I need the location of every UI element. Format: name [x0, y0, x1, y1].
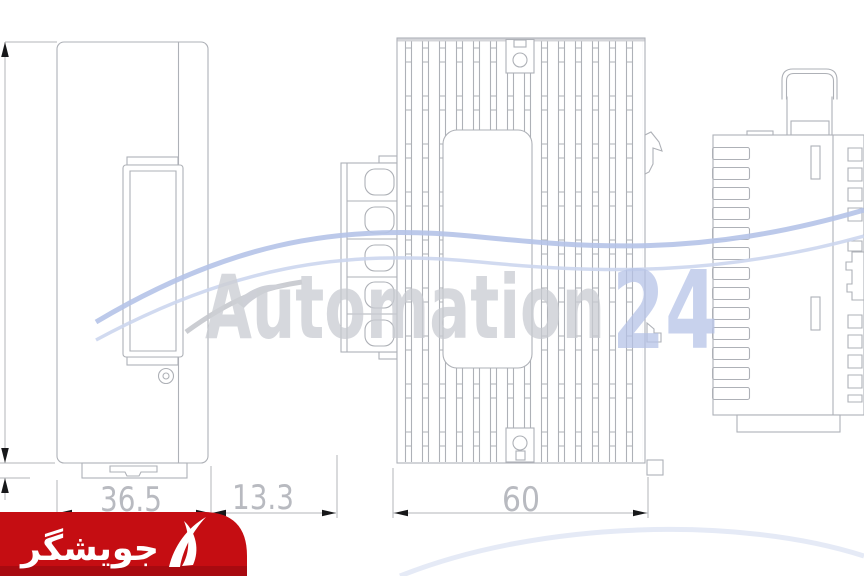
- drawing-canvas: Automation 24 36.5 13.3 60 جویشگر: [0, 0, 864, 576]
- arrow-right-icon: [633, 510, 647, 516]
- side-width-value: 60: [502, 480, 540, 520]
- rear-view: [712, 69, 864, 432]
- top-mount-plate: [506, 40, 534, 74]
- screw-icon: [159, 369, 174, 384]
- din-clip-stem: [787, 97, 832, 135]
- arrow-up-small-icon: [1, 478, 9, 493]
- side-width-dimension: 60: [393, 468, 648, 520]
- front-view: [57, 42, 208, 478]
- vendor-badge: جویشگر: [0, 512, 247, 576]
- panel-bottom-tab: [127, 357, 178, 365]
- arrow-down-icon: [1, 448, 9, 463]
- terminal-depth-value: 13.3: [232, 478, 294, 518]
- terminal-step-top: [379, 156, 397, 163]
- watermark-suffix-text: 24: [612, 249, 718, 374]
- panel-top-tab: [127, 157, 178, 165]
- din-clip-handle-inner: [787, 74, 834, 100]
- height-dimension: [0, 42, 57, 500]
- technical-drawing-page: Automation 24 36.5 13.3 60 جویشگر: [0, 0, 864, 576]
- badge-label: جویشگر: [19, 528, 159, 569]
- rear-foot: [737, 415, 840, 432]
- arrow-right-icon: [322, 510, 336, 516]
- arrow-left-icon: [394, 510, 408, 516]
- bottom-mount-plate: [506, 428, 534, 462]
- arrow-up-icon: [1, 42, 9, 57]
- watermark-brand-text: Automation: [205, 256, 605, 359]
- rear-top-rib: [747, 131, 773, 135]
- terminal-depth-dimension: 13.3: [211, 455, 337, 518]
- bottom-right-tab: [647, 460, 663, 475]
- front-panel: [123, 165, 183, 357]
- din-hook-upper: [645, 132, 662, 174]
- height-dim-lines: [0, 42, 57, 500]
- bottom-arc: [400, 529, 864, 576]
- din-clip-latch: [791, 121, 829, 135]
